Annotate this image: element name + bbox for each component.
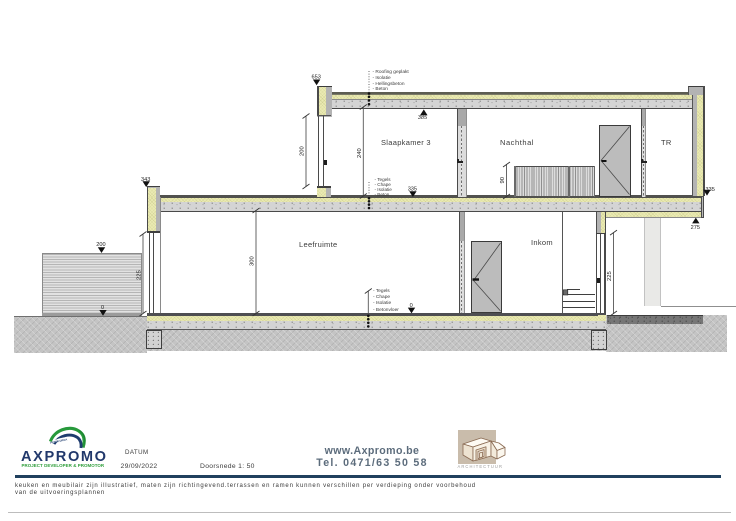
svg-text:200: 200 bbox=[300, 146, 306, 156]
svg-text:0: 0 bbox=[101, 305, 104, 311]
svg-text:343: 343 bbox=[141, 177, 150, 183]
svg-text:225: 225 bbox=[607, 271, 613, 281]
svg-text:385: 385 bbox=[418, 115, 428, 121]
svg-text:335: 335 bbox=[706, 187, 715, 193]
svg-text:90: 90 bbox=[500, 177, 506, 183]
svg-text:0: 0 bbox=[410, 303, 413, 309]
svg-text:200: 200 bbox=[96, 242, 105, 248]
svg-text:275: 275 bbox=[691, 225, 700, 231]
svg-text:240: 240 bbox=[357, 148, 363, 158]
svg-text:225: 225 bbox=[137, 270, 143, 280]
svg-text:300: 300 bbox=[250, 256, 256, 266]
svg-text:335: 335 bbox=[408, 186, 417, 192]
svg-text:653: 653 bbox=[312, 75, 321, 81]
